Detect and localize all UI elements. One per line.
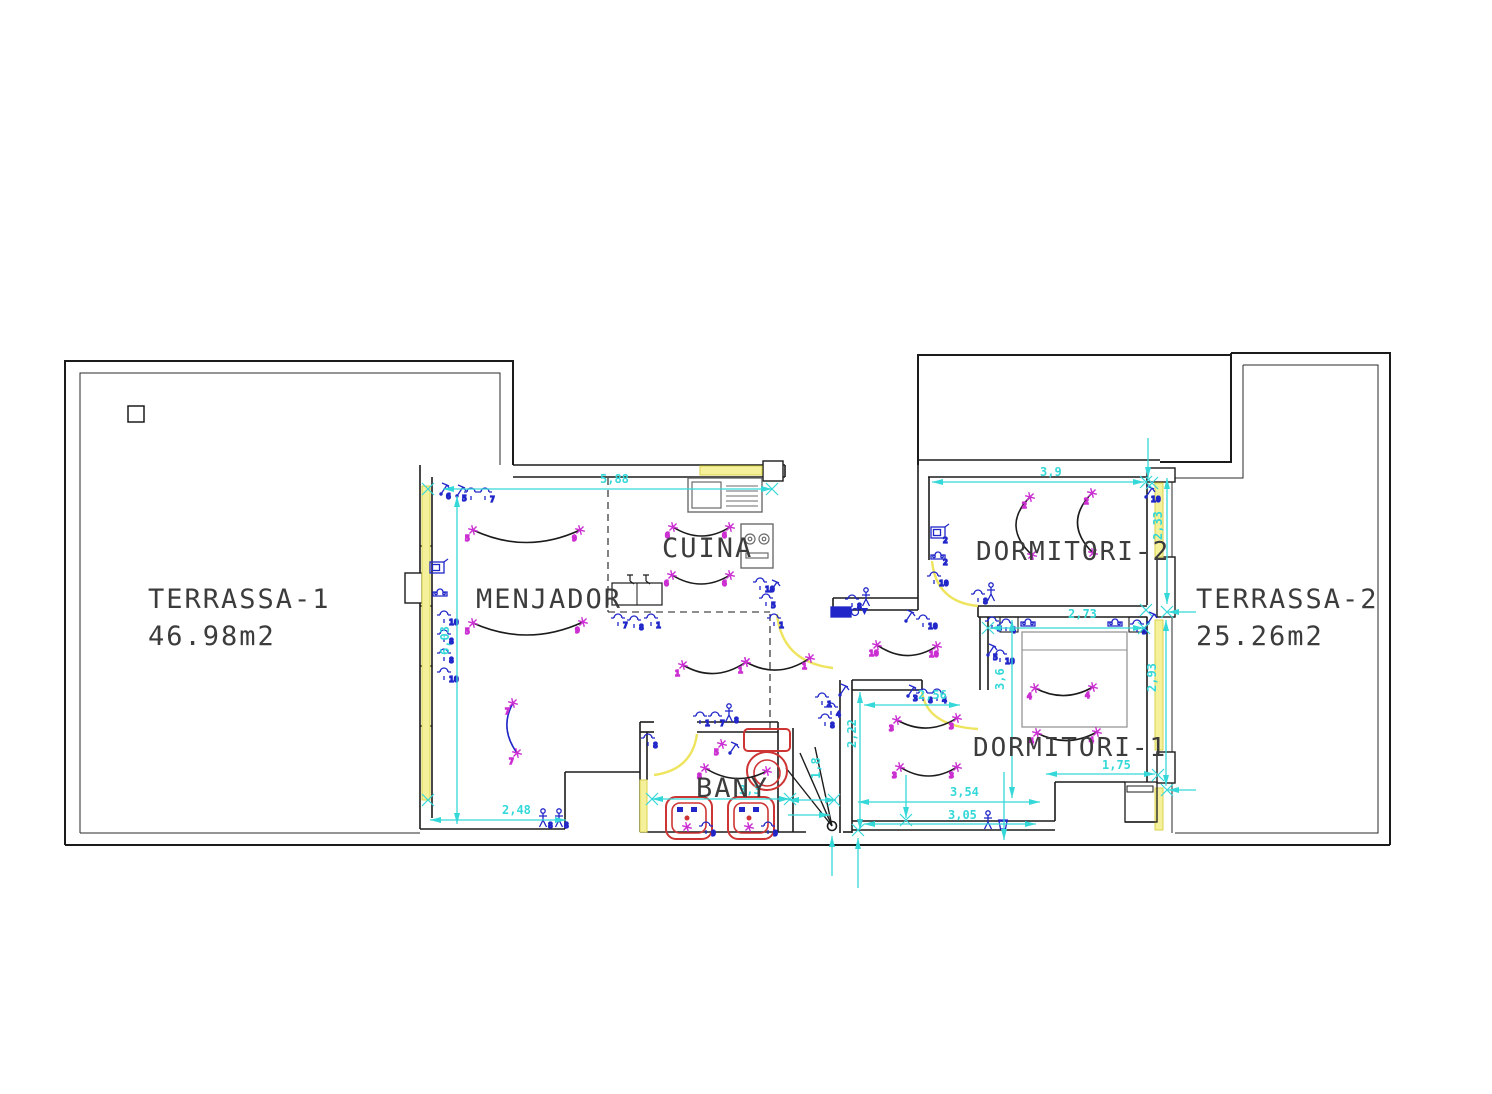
- light-label: 4: [1027, 692, 1032, 701]
- dim-arrow: [864, 702, 875, 708]
- symbol-label: 10: [928, 622, 938, 631]
- switch-lines: [906, 610, 915, 621]
- outer-wall: [918, 355, 1231, 465]
- symbol-label: 4: [836, 710, 841, 719]
- symbol-label: 8: [983, 597, 988, 606]
- dim-arrow: [1144, 771, 1155, 777]
- shape-circle: [762, 537, 766, 541]
- light-label: 5: [465, 534, 470, 543]
- symbol-label: 7: [490, 495, 495, 504]
- phone-icon: [1108, 619, 1122, 626]
- dim-text: 3,05: [948, 808, 977, 822]
- light-dot: [876, 644, 879, 647]
- dim-text: 2,48: [502, 803, 531, 817]
- symbol-label: 8: [639, 623, 644, 632]
- light-label: 6: [664, 579, 669, 588]
- light-label: 2: [1022, 501, 1027, 510]
- person-icon: [862, 588, 870, 606]
- switch-lines: [840, 684, 849, 695]
- shape-rect: [1127, 786, 1153, 792]
- dim-text: 3,54: [950, 785, 979, 799]
- light-label: 3: [949, 722, 954, 731]
- light-label: 10: [869, 649, 879, 658]
- light-wire-arc: [877, 645, 937, 656]
- tv-ant: [444, 559, 448, 562]
- socket-icon: 10: [437, 668, 459, 684]
- person-icon: [987, 583, 995, 601]
- light-point-icon: 3: [949, 713, 962, 731]
- light-point-icon: 3: [889, 715, 902, 733]
- light-dot: [672, 526, 675, 529]
- dim-arrow: [864, 821, 875, 827]
- light-dot: [721, 743, 724, 746]
- socket-icon: 1: [644, 614, 661, 630]
- light-label: 3: [892, 771, 897, 780]
- person-icon: [984, 811, 992, 829]
- light-dot: [1091, 492, 1094, 495]
- light-label: 1: [738, 666, 743, 675]
- symbol-label: 1: [779, 621, 784, 630]
- light-point-icon: 5: [465, 618, 478, 636]
- socket-shape: [974, 590, 982, 594]
- symbol-label: 5: [771, 601, 776, 610]
- window: [422, 486, 430, 800]
- room-label-dormitori-1: DORMITORI-1: [973, 733, 1167, 763]
- light-point-icon: 4: [1085, 682, 1098, 700]
- socket-icon: 8: [627, 616, 644, 632]
- wall-pillar: [405, 573, 422, 603]
- room-label-terrassa-1: TERRASSA-1: [148, 584, 331, 615]
- phone-dial: [933, 555, 935, 557]
- light-dot: [956, 766, 959, 769]
- person-head: [989, 583, 993, 587]
- socket-shape: [630, 616, 638, 620]
- switch-icon: [728, 742, 739, 755]
- shape-rect: [1125, 782, 1157, 822]
- socket-shape: [988, 617, 996, 621]
- socket-shape: [644, 734, 652, 738]
- fixture-detail: [691, 807, 697, 812]
- fixture-dot: [747, 816, 752, 821]
- socket-icon: 7: [478, 488, 495, 504]
- light-label: 9: [575, 626, 580, 635]
- light-label: 5: [465, 627, 470, 636]
- window: [640, 780, 647, 832]
- tv-screen: [934, 530, 941, 536]
- symbol-label: 8: [548, 821, 553, 830]
- socket-shape: [919, 615, 927, 619]
- symbol-label: 7: [623, 621, 628, 630]
- light-dot: [1029, 496, 1032, 499]
- light-label: 10: [929, 650, 939, 659]
- shape-circle: [759, 534, 769, 544]
- switch-lines: [730, 742, 739, 753]
- light-point-icon: 5: [714, 739, 727, 757]
- phone-dial: [443, 592, 445, 594]
- light-wire-arc: [746, 658, 810, 670]
- person-head: [557, 809, 561, 813]
- door-swing: [777, 614, 833, 668]
- socket-icon: 9: [761, 822, 778, 838]
- socket-icon: 8: [641, 734, 658, 750]
- switch-icon: 6: [439, 483, 451, 501]
- panel-triangle: [861, 608, 868, 615]
- wall-pillar: [763, 461, 783, 481]
- light-label: 1: [675, 669, 680, 678]
- light-label: 4: [1085, 691, 1090, 700]
- light-dot: [956, 717, 959, 720]
- fixture-detail: [739, 807, 745, 812]
- phone-dial: [1023, 622, 1025, 624]
- socket-shape: [696, 712, 704, 716]
- dim-arrow: [1046, 771, 1057, 777]
- symbol-label: 2: [943, 536, 948, 545]
- panel-icon: [831, 607, 868, 617]
- phone-icon: [1021, 619, 1035, 626]
- dim-arrow: [1133, 479, 1144, 485]
- light-point-icon: 1: [675, 660, 688, 678]
- light-dot: [896, 719, 899, 722]
- socket-shape: [821, 714, 829, 718]
- light-dot: [682, 664, 685, 667]
- fixture-dot: [685, 816, 690, 821]
- socket-icon: 1: [815, 693, 832, 709]
- light-wire-arc: [473, 530, 580, 543]
- socket-shape: [440, 668, 448, 672]
- light-dot: [899, 766, 902, 769]
- room-label-dormitori-2: DORMITORI-2: [976, 537, 1170, 567]
- light-label: 1: [802, 662, 807, 671]
- dim-arrow: [454, 813, 460, 824]
- light-dot: [936, 645, 939, 648]
- light-dot: [748, 826, 751, 829]
- tv-screen: [433, 565, 440, 571]
- symbol-label: 6: [446, 492, 451, 501]
- light-dot: [671, 574, 674, 577]
- person-body: [725, 708, 733, 722]
- light-label: 2: [1084, 497, 1089, 506]
- light-dot: [729, 574, 732, 577]
- room-label-cuina: CUINA: [662, 533, 753, 564]
- dim-arrow: [829, 836, 835, 847]
- light-wire-arc: [683, 662, 746, 674]
- symbol-label: 2: [943, 558, 948, 567]
- room-label-bany: BANY: [696, 773, 769, 804]
- light-point-icon: 4: [1027, 683, 1040, 701]
- floor-plan-svg: 5959666611110103333444487722565710881088…: [0, 0, 1492, 1094]
- symbol-label: 8: [857, 602, 862, 611]
- socket-shape: [711, 712, 719, 716]
- socket-shape: [762, 594, 770, 598]
- light-point-icon: 6: [722, 570, 735, 588]
- dim-text: 2,22: [845, 719, 859, 748]
- room-label-terrassa-2: TERRASSA-2: [1196, 584, 1379, 615]
- socket-icon: 7: [611, 614, 628, 630]
- symbol-label: 8: [653, 741, 658, 750]
- dim-text: 2,73: [1068, 607, 1097, 621]
- socket-icon: 10: [437, 611, 459, 627]
- window: [1155, 788, 1163, 830]
- light-point-icon: 2: [1022, 492, 1035, 510]
- dim-arrow: [1025, 821, 1036, 827]
- symbol-label: 9: [711, 829, 716, 838]
- light-dot: [512, 702, 515, 705]
- dim-arrow: [932, 479, 943, 485]
- light-dot: [472, 622, 475, 625]
- light-dot: [809, 657, 812, 660]
- socket-icon: 8: [971, 590, 988, 606]
- light-point-icon: 9: [572, 525, 585, 543]
- light-dot: [582, 621, 585, 624]
- light-dot: [516, 752, 519, 755]
- dim-text: 3,9: [1040, 465, 1062, 479]
- symbol-label: 8: [564, 821, 569, 830]
- light-dot: [1092, 686, 1095, 689]
- light-label: 3: [889, 724, 894, 733]
- socket-icon: 8: [818, 714, 835, 730]
- dim-arrow: [454, 496, 460, 507]
- light-label: 7: [509, 757, 514, 766]
- shape-rect: [128, 406, 144, 422]
- light-point-icon: [682, 822, 692, 832]
- socket-shape: [440, 611, 448, 615]
- socket-icon: 9: [699, 822, 716, 838]
- socket-shape: [647, 614, 655, 618]
- person-head: [986, 811, 990, 815]
- light-wire-arc: [897, 718, 957, 728]
- light-label: 9: [572, 534, 577, 543]
- person-body: [987, 587, 995, 601]
- light-point-icon: [744, 822, 754, 832]
- shape-rect: [688, 478, 762, 512]
- person-body: [862, 592, 870, 606]
- fixture-detail: [677, 807, 683, 812]
- light-label: 5: [714, 748, 719, 757]
- dim-arrow: [1009, 787, 1015, 798]
- switch-icon: [904, 610, 915, 623]
- panel-box: [831, 607, 851, 617]
- person-head: [727, 704, 731, 708]
- tv-icon: 2: [931, 524, 949, 545]
- dim-text: 1,8: [809, 757, 823, 779]
- light-point-icon: 10: [869, 640, 882, 658]
- dim-arrow: [949, 702, 960, 708]
- socket-icon: 10: [916, 615, 938, 631]
- dim-arrow: [903, 807, 909, 818]
- symbol-label: 10: [1151, 495, 1161, 504]
- person-head: [864, 588, 868, 592]
- phone-dial: [1031, 622, 1033, 624]
- window: [700, 466, 762, 475]
- dim-text: 5,88: [600, 472, 629, 486]
- wall-pillar: [1147, 468, 1175, 482]
- shape-rect: [1022, 632, 1127, 727]
- light-point-icon: 9: [575, 617, 588, 635]
- person-head: [541, 809, 545, 813]
- room-label-terrassa-1-area: 46.98m2: [148, 621, 276, 652]
- socket-shape: [818, 693, 826, 697]
- symbol-label: 8: [449, 656, 454, 665]
- symbol-label: 8: [830, 721, 835, 730]
- dim-text: 3,6: [993, 668, 1007, 690]
- floor-plan: 5959666611110103333444487722565710881088…: [0, 0, 1492, 1094]
- shape-rect: [692, 482, 721, 508]
- light-label: 3: [949, 771, 954, 780]
- light-dot: [472, 529, 475, 532]
- dim-text: 2,56: [918, 688, 947, 702]
- dim-arrow: [855, 838, 861, 849]
- socket-shape: [1002, 619, 1010, 623]
- dim-text: 2,93: [1145, 663, 1159, 692]
- dim-arrow: [1163, 620, 1169, 631]
- socket-icon: 5: [759, 594, 776, 610]
- light-label: 6: [722, 579, 727, 588]
- dim-text: 6,03: [438, 626, 452, 655]
- dim-text: 2,33: [1151, 511, 1165, 540]
- symbol-label: 8: [734, 716, 739, 725]
- light-point-icon: [741, 657, 751, 667]
- symbol-label: 10: [939, 579, 949, 588]
- socket-shape: [756, 578, 764, 582]
- phone-icon: [433, 589, 447, 596]
- light-point-icon: 3: [949, 762, 962, 780]
- room-label-menjador: MENJADOR: [476, 584, 622, 615]
- phone-dial: [435, 592, 437, 594]
- light-wire-arc: [473, 622, 583, 635]
- light-dot: [1034, 687, 1037, 690]
- tv-ant: [945, 524, 949, 527]
- light-point-icon: 5: [465, 525, 478, 543]
- outer-wall: [1160, 353, 1231, 462]
- light-point-icon: 10: [929, 641, 942, 659]
- phone-dial: [1118, 622, 1120, 624]
- light-label: 7: [505, 707, 510, 716]
- person-body: [984, 815, 992, 829]
- light-point-icon: 6: [664, 570, 677, 588]
- symbol-label: 1: [705, 719, 710, 728]
- room-label-terrassa-2-area: 25.26m2: [1196, 621, 1324, 652]
- phone-dial: [1110, 622, 1112, 624]
- light-dot: [745, 661, 748, 664]
- symbol-label: 1: [656, 621, 661, 630]
- dim-arrow: [1001, 829, 1007, 840]
- light-dot: [579, 529, 582, 532]
- symbol-label: 10: [1005, 657, 1015, 666]
- symbol-label: 5: [462, 494, 467, 503]
- fixture-detail: [753, 807, 759, 812]
- socket-icon: 1: [693, 712, 710, 728]
- light-dot: [686, 826, 689, 829]
- symbol-label: 7: [720, 719, 725, 728]
- light-point-icon: 3: [892, 762, 905, 780]
- door-swing: [654, 734, 697, 775]
- dim-arrow: [1029, 799, 1040, 805]
- light-dot: [729, 526, 732, 529]
- dim-arrow: [857, 692, 863, 703]
- symbol-label: 9: [773, 829, 778, 838]
- switch-icon: 3: [906, 685, 918, 703]
- socket-icon: 7: [708, 712, 725, 728]
- light-point-icon: 2: [1084, 488, 1097, 506]
- light-dot: [704, 767, 707, 770]
